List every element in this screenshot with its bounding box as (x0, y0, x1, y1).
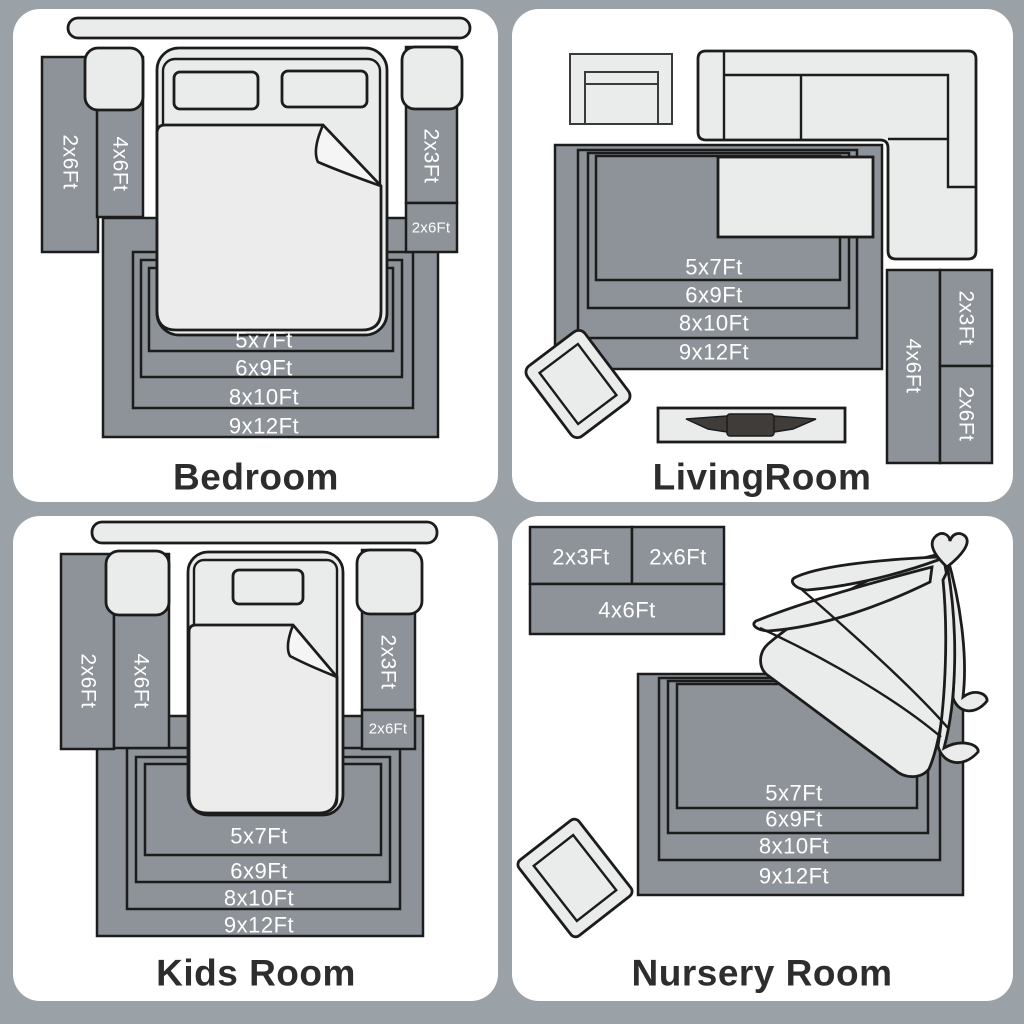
kidsroom-bed (188, 552, 343, 815)
livingroom-rug-9x12-label: 9x12Ft (679, 340, 749, 365)
nursery-rug-2x3-label: 2x3Ft (552, 545, 610, 570)
livingroom-coffee-table (718, 157, 873, 237)
bedroom-headboard (68, 18, 470, 38)
nursery-rug-5x7-label: 5x7Ft (765, 781, 823, 806)
rug-size-guide: 5x7Ft 6x9Ft 8x10Ft 9x12Ft 2x6Ft 4x6Ft 2x… (0, 0, 1024, 1024)
livingroom-rug-4x6-label: 4x6Ft (902, 338, 925, 393)
bedroom-nightstand-left (85, 48, 143, 110)
kidsroom-panel: 5x7Ft 6x9Ft 8x10Ft 9x12Ft 2x6Ft 4x6Ft 2x… (13, 516, 498, 1001)
nursery-rug-6x9-label: 6x9Ft (765, 807, 823, 832)
kidsroom-pillow (233, 570, 303, 604)
livingroom-panel: 5x7Ft 6x9Ft 8x10Ft 9x12Ft 4x6Ft 2x3Ft 2x… (512, 9, 1013, 502)
bedroom-rug-2x6-left-label: 2x6Ft (59, 134, 82, 189)
bedroom-rug-2x6-right-label: 2x6Ft (412, 220, 451, 237)
livingroom-rug-5x7-label: 5x7Ft (685, 255, 743, 280)
bedroom-nightstand-right (402, 47, 462, 109)
nursery-rug-9x12-label: 9x12Ft (759, 864, 829, 889)
bedroom-bed (157, 48, 387, 335)
bedroom-rug-5x7-label: 5x7Ft (235, 328, 293, 353)
bedroom-rug-8x10-label: 8x10Ft (229, 385, 299, 410)
kidsroom-nightstand-right (357, 550, 422, 614)
livingroom-tv-console (658, 408, 845, 442)
nursery-rug-8x10-label: 8x10Ft (759, 834, 829, 859)
rug-size-guide-canvas: 5x7Ft 6x9Ft 8x10Ft 9x12Ft 2x6Ft 4x6Ft 2x… (0, 0, 1024, 1024)
livingroom-rug-2x3-label: 2x3Ft (955, 290, 978, 345)
kidsroom-rug-8x10-label: 8x10Ft (224, 886, 294, 911)
livingroom-title: LivingRoom (653, 457, 872, 498)
kidsroom-rug-2x6-left-label: 2x6Ft (77, 653, 100, 708)
kidsroom-rug-4x6-label: 4x6Ft (130, 653, 153, 708)
livingroom-armchair (570, 54, 672, 124)
bedroom-pillow-left (174, 72, 258, 109)
kidsroom-rug-2x6-right-label: 2x6Ft (369, 721, 408, 738)
kidsroom-rug-9x12-label: 9x12Ft (224, 913, 294, 938)
bedroom-title: Bedroom (173, 457, 339, 498)
kidsroom-rug-5x7-label: 5x7Ft (230, 824, 288, 849)
bedroom-rug-4x6-label: 4x6Ft (109, 136, 132, 191)
kidsroom-rug-2x3-label: 2x3Ft (377, 634, 400, 689)
nursery-rug-2x6-label: 2x6Ft (649, 545, 707, 570)
tv-stand (727, 414, 774, 436)
kidsroom-headboard (92, 522, 437, 543)
livingroom-rug-6x9-label: 6x9Ft (685, 283, 743, 308)
nursery-rug-block: 2x3Ft 2x6Ft 4x6Ft (530, 527, 724, 634)
nursery-title: Nursery Room (632, 953, 893, 994)
bedroom-rug-2x3-label: 2x3Ft (420, 128, 443, 183)
kidsroom-title: Kids Room (156, 953, 356, 994)
kidsroom-nightstand-left (106, 551, 169, 615)
livingroom-rug-2x6-label: 2x6Ft (955, 386, 978, 441)
nursery-rug-4x6-label: 4x6Ft (598, 598, 656, 623)
bedroom-panel: 5x7Ft 6x9Ft 8x10Ft 9x12Ft 2x6Ft 4x6Ft 2x… (13, 9, 498, 502)
livingroom-rug-8x10-label: 8x10Ft (679, 311, 749, 336)
nursery-panel: 2x3Ft 2x6Ft 4x6Ft 5x7Ft 6x9Ft 8x10Ft (512, 516, 1013, 1001)
bedroom-rug-9x12-label: 9x12Ft (229, 414, 299, 439)
kidsroom-rug-6x9-label: 6x9Ft (230, 859, 288, 884)
bedroom-rug-6x9-label: 6x9Ft (235, 356, 293, 381)
bedroom-pillow-right (282, 71, 367, 107)
